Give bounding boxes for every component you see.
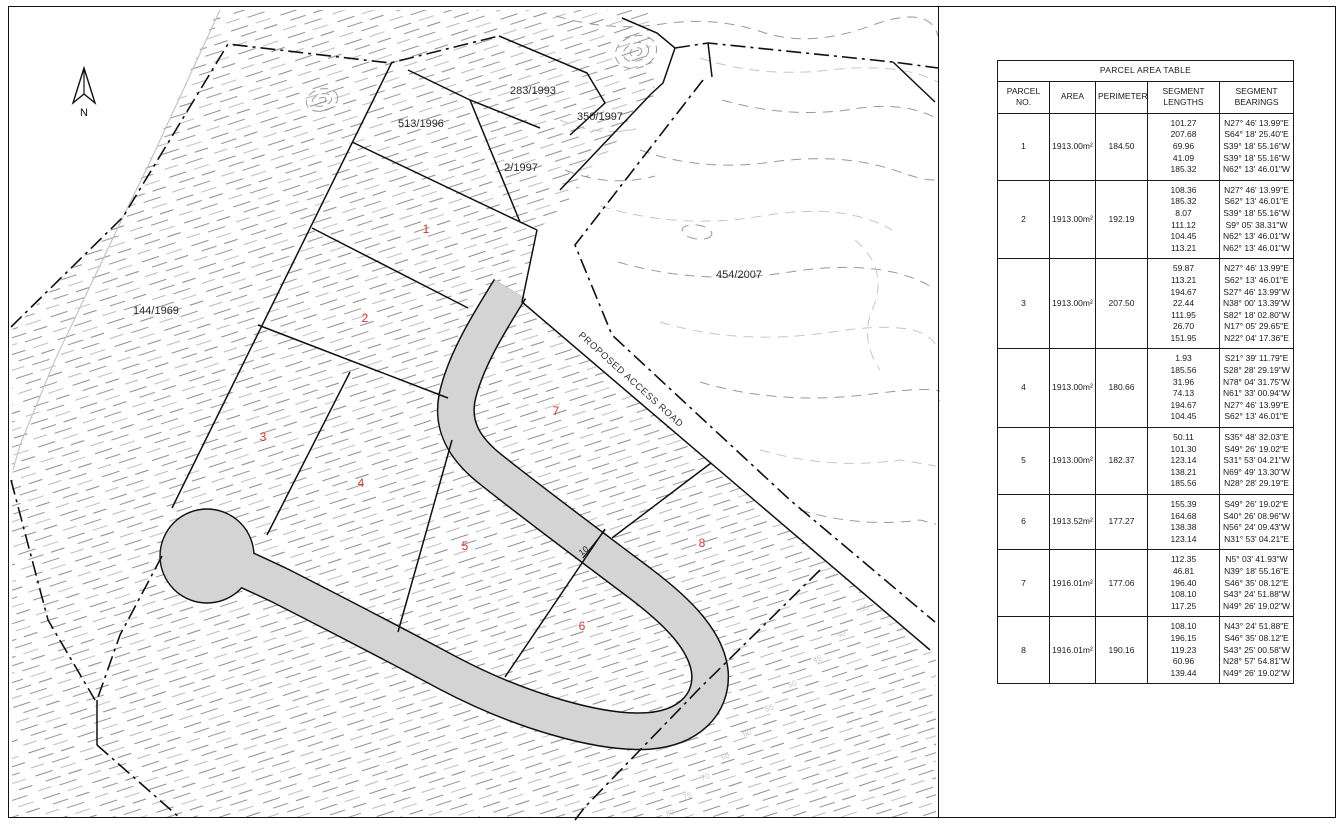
sheet-border — [8, 6, 1336, 818]
drawing-sheet: N 283/1993 513/1996 350/1997 2/1997 454/… — [0, 0, 1340, 826]
panel-divider-line — [938, 6, 939, 818]
